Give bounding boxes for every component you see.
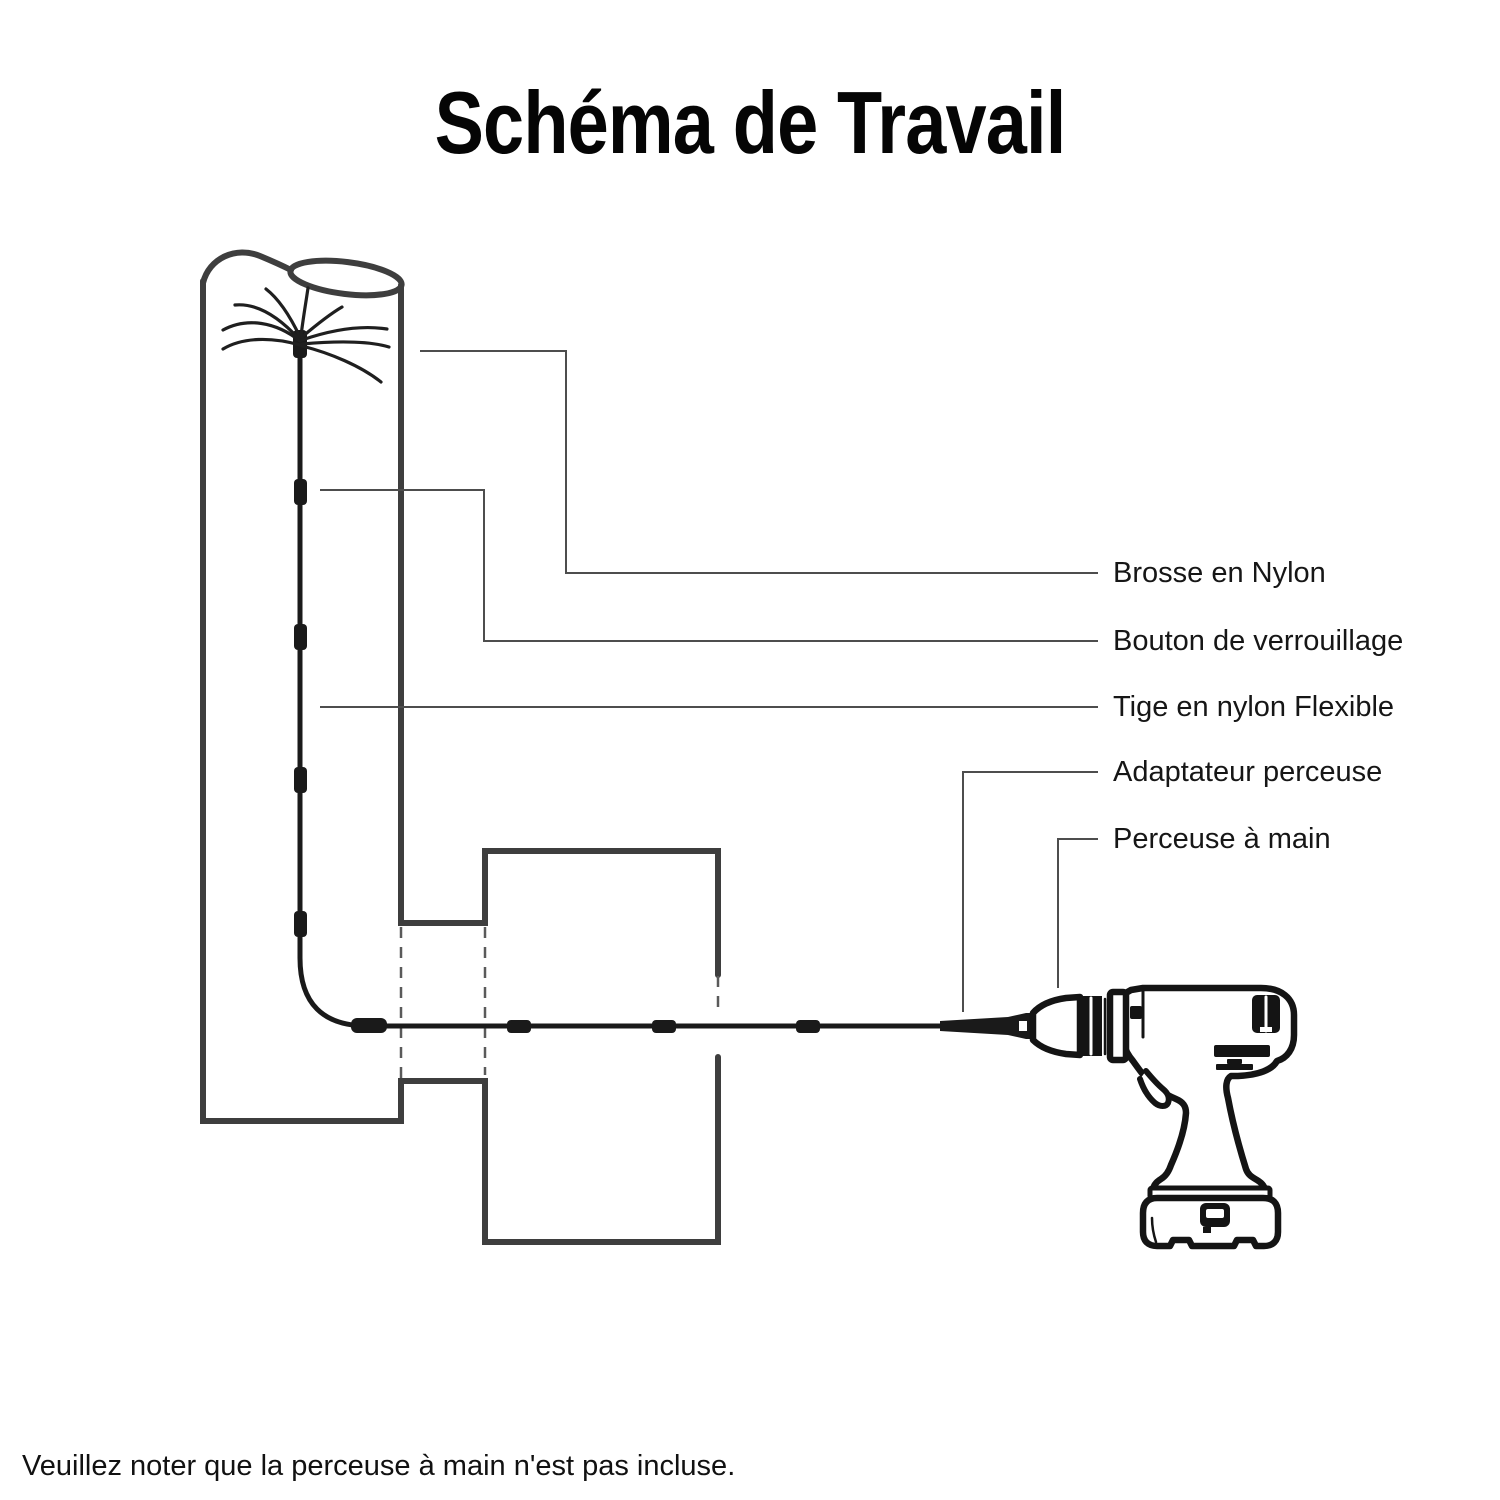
hand-drill bbox=[1033, 988, 1294, 1246]
drill-label-bar bbox=[1227, 1059, 1242, 1064]
brush-bristle bbox=[302, 342, 389, 347]
nylon-brush bbox=[223, 288, 389, 382]
drill-chuck-nose bbox=[1033, 997, 1080, 1055]
brush-bristle bbox=[302, 346, 381, 382]
leader-bouton bbox=[320, 490, 1098, 641]
chimney-outline bbox=[203, 252, 718, 1242]
drill-vent-notch bbox=[1260, 1027, 1272, 1032]
label-nylon-brush: Brosse en Nylon bbox=[1113, 555, 1326, 591]
rod-joint-bend bbox=[351, 1018, 387, 1033]
drill-switch bbox=[1130, 1006, 1142, 1019]
hidden-edges bbox=[401, 927, 718, 1079]
drill-label-bar bbox=[1214, 1045, 1270, 1057]
work-diagram bbox=[0, 0, 1500, 1500]
drill-chuck-collar bbox=[1110, 992, 1126, 1060]
rod-joint bbox=[507, 1020, 531, 1033]
label-drill-adapter: Adaptateur perceuse bbox=[1113, 754, 1382, 790]
leader-perceuse bbox=[1058, 839, 1098, 988]
label-locking-button: Bouton de verrouillage bbox=[1113, 623, 1403, 659]
chimney-right-wall bbox=[401, 285, 718, 975]
leader-lines bbox=[320, 351, 1098, 1012]
leader-adaptateur bbox=[963, 772, 1098, 1012]
leader-brosse bbox=[420, 351, 1098, 573]
rod-line bbox=[300, 352, 942, 1026]
drill-label-bar bbox=[1216, 1064, 1253, 1070]
chimney-left-wall bbox=[203, 281, 718, 1242]
adapter-notch bbox=[1019, 1021, 1027, 1031]
rod-joint bbox=[294, 479, 307, 505]
label-flexible-rod: Tige en nylon Flexible bbox=[1113, 689, 1394, 725]
brush-bristle bbox=[302, 328, 387, 340]
battery-logo-slot bbox=[1206, 1209, 1224, 1218]
battery-logo-tail bbox=[1203, 1227, 1211, 1233]
rod-joint bbox=[294, 767, 307, 793]
rod-joint bbox=[294, 911, 307, 937]
rod-joint bbox=[796, 1020, 820, 1033]
chimney-top-edge bbox=[203, 252, 291, 283]
rod-joint bbox=[294, 624, 307, 650]
label-hand-drill: Perceuse à main bbox=[1113, 821, 1331, 857]
work-diagram-page: Schéma de Travail bbox=[0, 0, 1500, 1500]
rod-joint bbox=[652, 1020, 676, 1033]
brush-bristle bbox=[301, 288, 308, 336]
footnote: Veuillez noter que la perceuse à main n'… bbox=[22, 1450, 735, 1483]
brush-bristle bbox=[223, 339, 300, 349]
